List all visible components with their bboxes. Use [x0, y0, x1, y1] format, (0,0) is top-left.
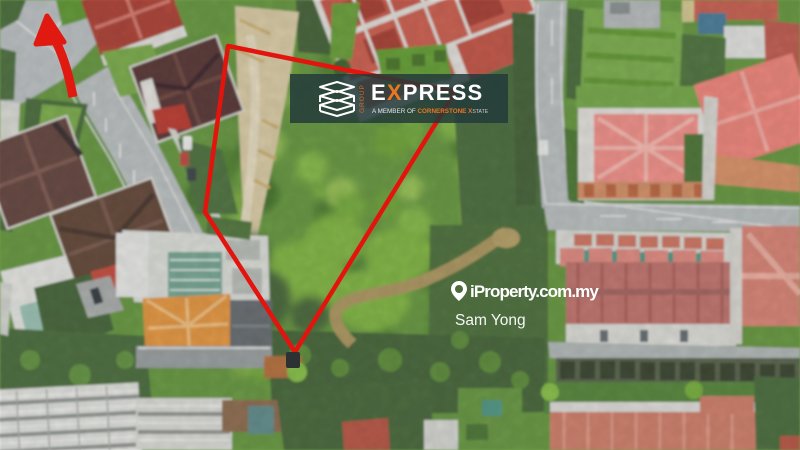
svg-text:iProperty.com.my: iProperty.com.my	[470, 282, 599, 301]
svg-text:GROUP: GROUP	[359, 84, 366, 113]
svg-text:A MEMBER OF CORNERSTONE XSTATE: A MEMBER OF CORNERSTONE XSTATE	[372, 108, 489, 115]
svg-text:EXPRESS: EXPRESS	[371, 80, 483, 105]
svg-text:Sam Yong: Sam Yong	[455, 312, 526, 329]
